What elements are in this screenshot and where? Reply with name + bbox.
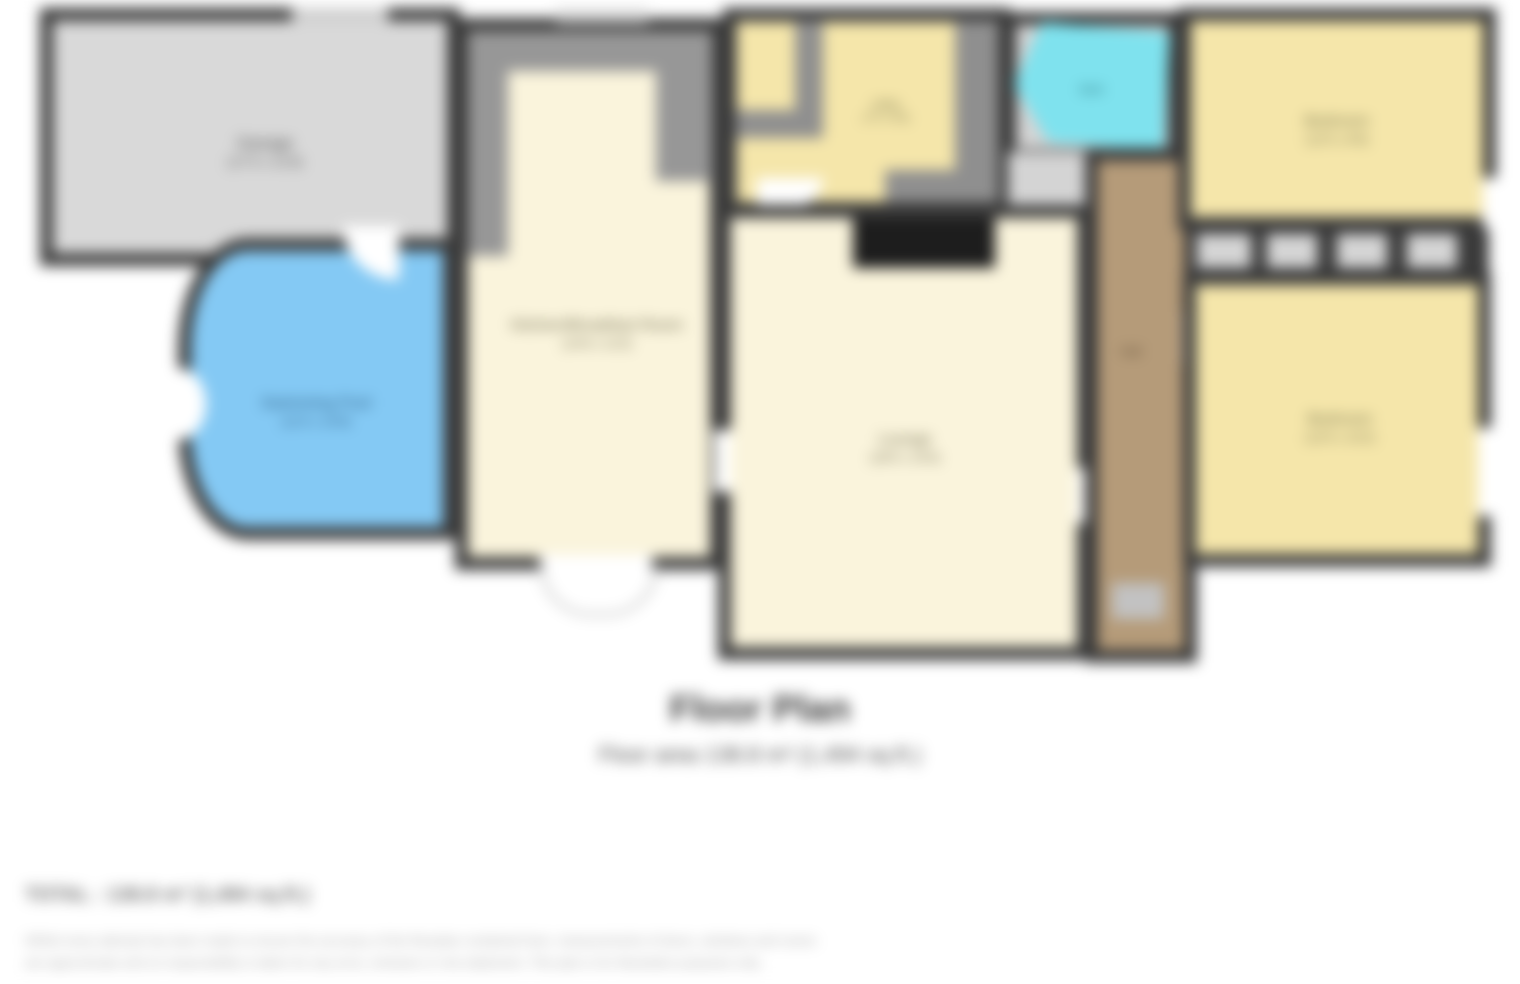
kitchen-lounge-door-opening <box>714 430 731 492</box>
wardrobe-cell <box>1197 234 1251 268</box>
bedroom2-window <box>1478 428 1491 516</box>
wardrobe-cell <box>1267 234 1317 268</box>
bath-hall-connector <box>1008 152 1086 210</box>
pool-edge-scallop <box>148 368 206 440</box>
room-label-utility: Utility (7'5 x 6'8) <box>862 98 910 127</box>
stairs-landing-left <box>468 31 508 256</box>
floorplan-title: Floor Plan <box>0 688 1520 730</box>
room-label-bedroom2: Bedroom (12'5 x 10'2) <box>1305 410 1376 446</box>
floorplan-subtitle: Floor area 138.8 m² (1,494 sq.ft.) <box>0 742 1520 768</box>
hall-doormat <box>1112 583 1164 619</box>
room-label-garage: Garage (17'2 x 11'9) <box>227 133 302 172</box>
room-label-hall: Hall <box>1121 345 1142 360</box>
kitchen-door-swing-arc <box>540 565 658 616</box>
total-area-line: TOTAL : 138.8 m² (1,494 sq.ft.) <box>25 884 310 907</box>
room-label-bedroom1: Bedroom (12'5 x 8'9) <box>1305 112 1370 148</box>
disclaimer-line-1: Whilst every attempt has been made to en… <box>25 933 816 948</box>
chimney-breast <box>853 218 995 268</box>
floorplan-caption: Floor Plan Floor area 138.8 m² (1,494 sq… <box>0 688 1520 768</box>
disclaimer-line-2: are approximate and no responsibility is… <box>25 955 762 970</box>
stairs-landing-right <box>656 31 712 181</box>
utility-sub-a <box>737 22 795 110</box>
wardrobe-cell <box>1337 234 1387 268</box>
wardrobe-cell <box>1407 234 1457 268</box>
room-label-bath: Bath <box>1080 83 1105 98</box>
blurred-floorplan-scene: Garage (17'2 x 11'9) Swimming Pool (11'5… <box>0 0 1520 984</box>
room-label-lounge: Lounge (18'5 x 15'0) <box>870 430 941 466</box>
room-label-kitchen: Kitchen/Breakfast Room (14'6 x 11'0) <box>511 316 684 352</box>
room-label-pool: Swimming Pool (11'5 x 10'9) <box>261 394 371 430</box>
room-swimming-pool <box>178 238 456 540</box>
kitchen-window <box>556 10 648 23</box>
garage-window <box>292 8 388 22</box>
